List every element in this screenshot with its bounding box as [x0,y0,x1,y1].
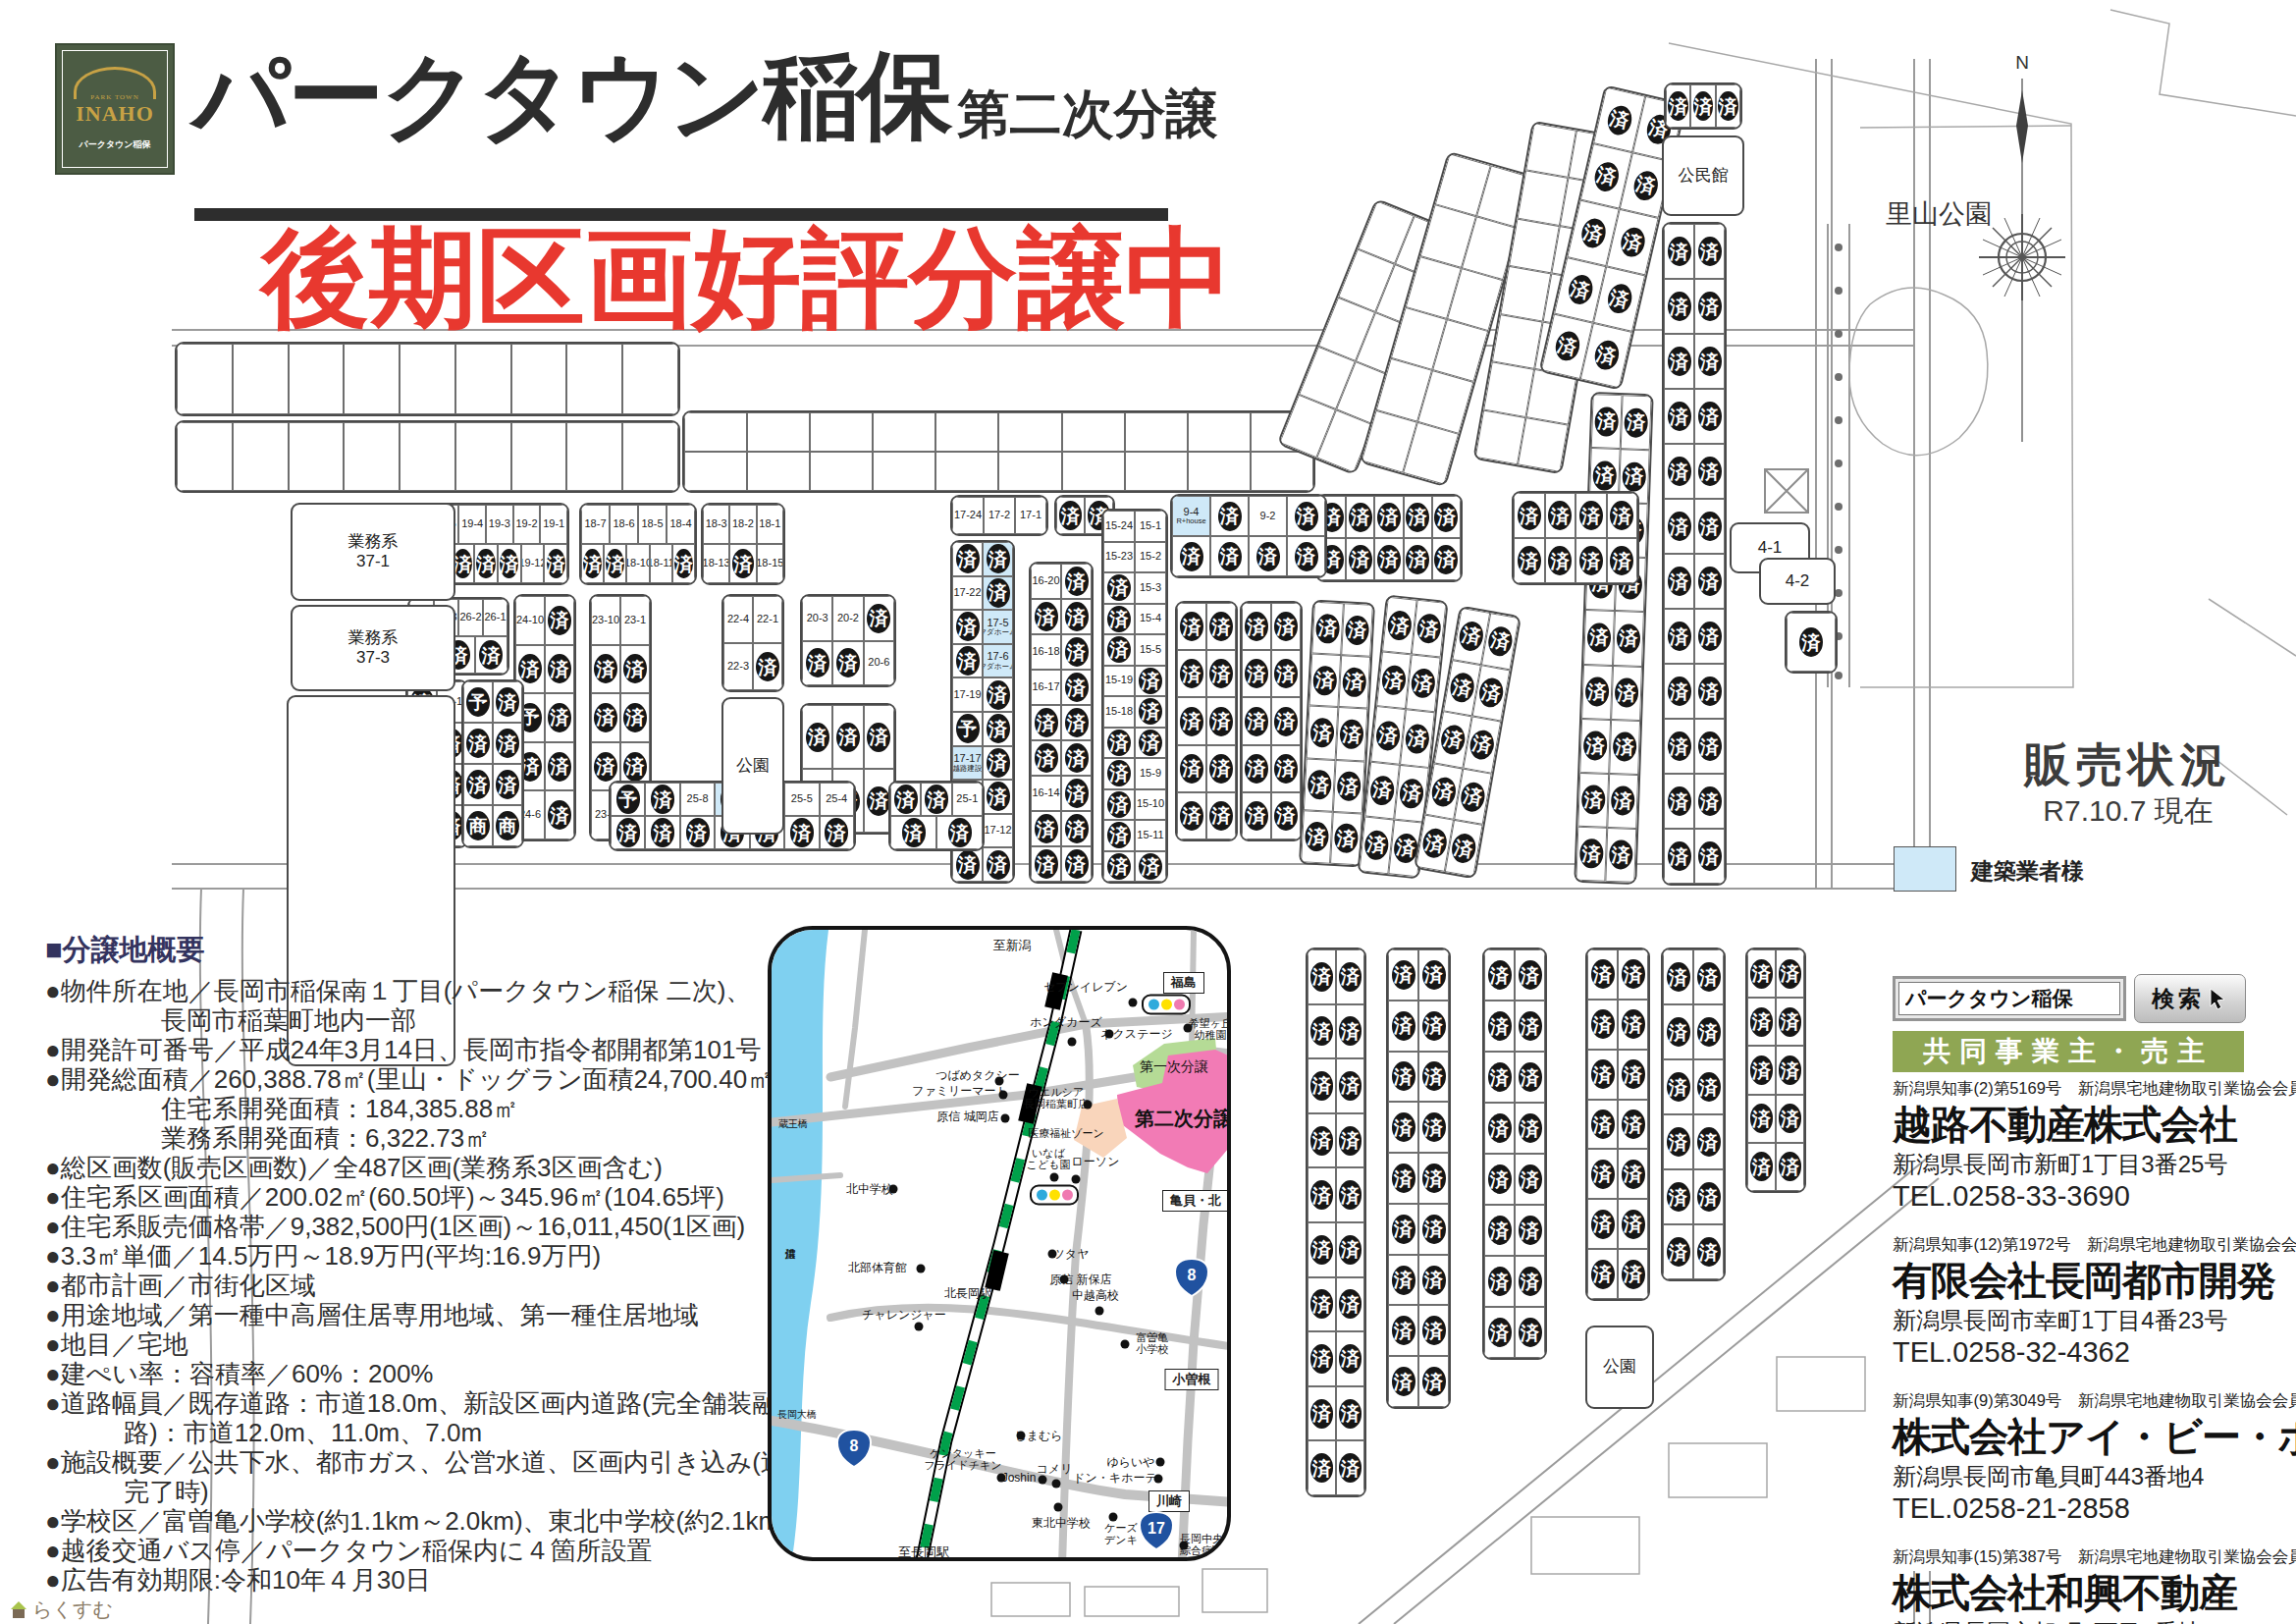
poi-dot-icon [1129,999,1138,1007]
sold-mark: 済 [1519,1318,1542,1347]
lot-cell: 済 [1271,603,1301,650]
map-parcel: 4-2 [1759,558,1836,605]
lot-number: 19-3 [489,518,510,530]
lot-cell: 済 [545,790,574,839]
lot-cell: 済 [1515,1205,1545,1256]
lot-cell: 済 [753,643,782,690]
lot-cell: 19-2 [513,505,541,544]
traffic-signal-icon [1142,995,1191,1015]
sold-mark: 済 [623,703,647,732]
lot-cell: 済 [1336,1277,1364,1332]
sold-mark: 済 [1622,1110,1645,1139]
lot-cell: 済 [1747,1095,1776,1143]
inset-place-label: 医療福祉ゾーン [1028,1128,1104,1140]
lot-cell: 済 [1308,1386,1336,1441]
lot-cell: 済 [1664,334,1694,389]
lot-cell: 済 [1336,1058,1364,1113]
overview-line: ●3.3㎡単価／14.5万円～18.9万円(平均:16.9万円) [45,1241,791,1271]
lot-cell: 済 [1545,538,1576,583]
inset-place-label: Joshin [1002,1472,1037,1485]
lot-cell: 済 [1611,666,1642,721]
lot-cell: 済 [591,693,620,742]
lot-cell [810,452,873,491]
lot-number: 17-22 [953,587,981,599]
lot-cell: 済 [493,723,522,764]
lot-cell: 済 [1618,1199,1648,1249]
lot-cell: 済 [1432,538,1461,580]
lot-cell: 済 [1135,696,1166,728]
lot-cell: 済 [784,816,819,849]
lot-cell: 済 [544,544,567,583]
overview-line: ●用途地域／第一種中高層住居専用地域、第一種住居地域 [45,1300,791,1329]
sold-mark: 済 [1336,771,1362,801]
lot-cell: 済 [1618,949,1648,1000]
lot-cell: 済 [1776,949,1804,998]
sold-mark: 済 [1468,729,1496,762]
lot-cell: 済 [463,764,493,805]
lot-cell: 済 [591,645,620,694]
lot-cell [1518,417,1569,472]
lot-cell: 17-22 [952,576,983,611]
sold-mark: 済 [1668,731,1691,761]
sold-mark: 済 [1422,1011,1446,1041]
sold-mark: 済 [1404,723,1430,754]
sold-mark: 済 [1718,91,1738,121]
lot-cell: 済 [1031,846,1061,882]
overview-line: 住宅系開発面積：184,385.88㎡ [45,1094,791,1123]
poi-dot-icon [1050,1173,1059,1182]
sold-mark: 済 [1209,612,1233,641]
lot-cell: 済 [1388,1153,1418,1204]
sold-mark: 済 [1392,1316,1415,1345]
lot-cell: 18-3 [703,505,729,544]
lot-cell: 済 [1031,705,1061,740]
lot-cell: 済 [1591,394,1623,449]
sold-mark: 済 [1488,1267,1512,1296]
inset-place-label: 中越高校 [1072,1289,1119,1302]
sold-mark: 済 [1779,1007,1802,1037]
sold-mark: 済 [1566,273,1595,307]
lot-cell: 17-24 [952,497,984,534]
sold-mark: 済 [1622,461,1646,492]
lot-cell: 予 [611,783,645,816]
sold-mark: 済 [1392,1164,1415,1193]
lot-cell: 済 [1575,493,1607,538]
lot-cell: 済 [1587,949,1618,1000]
lot-cell: 済 [1271,697,1301,744]
inset-place-label: いなば こども園 [1027,1148,1071,1171]
sold-mark: 済 [1310,1180,1334,1210]
sold-mark: 済 [1274,659,1298,688]
lot-cell: 17-17越路建設 [952,746,983,781]
sold-mark: 済 [1698,786,1722,816]
sold-mark: 済 [1312,665,1338,695]
sold-mark: 済 [1698,292,1722,321]
sold-mark: 済 [1667,962,1690,992]
sold-mark: 済 [1065,708,1089,737]
sold-mark: 済 [1392,960,1415,990]
lot-number: 23-10 [592,615,619,626]
sold-mark: 済 [1799,627,1823,657]
lot-cell: 済 [1618,1100,1648,1150]
lot-cell: 済 [1664,444,1694,499]
sold-mark: 済 [651,818,674,846]
poi-dot-icon [1039,1476,1047,1485]
sold-mark: 済 [867,786,890,816]
lot-cell: 済 [1664,774,1694,829]
sold-mark: 済 [1065,743,1089,773]
lot-number: 15-1 [1140,520,1161,532]
lot-cell: 済 [1587,1149,1618,1199]
lot-cell: 済 [1304,758,1336,812]
sold-mark: 済 [1107,730,1131,756]
lot-cell: 15-23 [1103,542,1135,573]
lot-cell: 済 [1432,496,1461,538]
lot-cell: 済 [545,596,574,645]
lot-cell: 済 [1103,820,1135,851]
sold-mark: 済 [1422,1061,1446,1091]
sold-mark: 済 [1339,1071,1362,1101]
lot-cell: 済 [1664,609,1694,664]
lot-cell [344,422,400,491]
sold-mark: 済 [1256,542,1280,571]
lot-number: 17-12 [984,825,1011,837]
lot-cell: 済 [1333,760,1365,814]
lot-cell: 済 [1388,1356,1418,1407]
lot-cell: 済 [1613,611,1644,666]
sold-mark: 済 [1667,1017,1690,1047]
lot-cell [747,412,810,452]
sold-mark: 済 [623,752,647,782]
lot-number: 17-5ヤマダホームズ [983,618,1013,636]
lot-cell: 済 [1747,1143,1776,1191]
sold-mark: 済 [1274,612,1298,641]
sold-mark: 済 [1552,329,1581,363]
lot-cell: 15-24 [1103,511,1135,542]
sold-mark: 済 [1059,501,1083,530]
lot-cell: 15-18 [1103,696,1135,728]
lot-block [682,410,1315,493]
sold-mark: 済 [1750,1056,1774,1085]
sold-mark: 済 [1605,103,1634,137]
inset-place-label: 長岡大橋 [777,1410,817,1421]
lot-cell: 済 [463,723,493,764]
sold-mark: 済 [1339,719,1364,749]
sold-mark: 済 [867,723,890,752]
lot-block [175,420,680,493]
sold-mark: 済 [1309,718,1335,748]
inset-place-label: ローソン [1072,1156,1120,1168]
lot-cell: 済 [1663,1059,1693,1114]
sold-mark: 済 [790,818,814,846]
sold-mark: 済 [1065,602,1089,631]
reserved-mark: 予 [616,785,640,813]
lot-block: 16-20済済済16-18済16-17済済済済済16-14済済済済済 [1029,562,1094,884]
poi-dot-icon [1156,1458,1165,1467]
lot-cell: 済 [1336,1440,1364,1495]
sold-mark: 済 [1065,779,1089,808]
overview-line: ●開発総面積／260,388.78㎡(里山・ドッグラン面積24,700.40㎡含… [45,1064,791,1094]
sold-mark: 済 [1697,1072,1721,1102]
sold-mark: 済 [1624,407,1648,438]
lot-block: 20-320-2済済済20-6 [800,594,896,687]
lot-cell: 済 [1694,279,1725,334]
sold-mark: 済 [1310,1289,1334,1319]
sold-mark: 済 [987,748,1010,778]
lot-number: 22-4 [727,614,749,625]
sold-mark: 済 [1518,501,1541,530]
sold-mark: 済 [1622,1260,1645,1289]
map-parcel: 業務系 37-3 [291,605,455,691]
sold-mark: 済 [1410,668,1436,699]
lot-number: 25-4 [826,793,847,805]
route-shield-icon: 17 [1137,1509,1176,1552]
sold-mark: 済 [1307,770,1332,800]
overview-line: ●越後交通バス停／パークタウン稲保内に４箇所設置 [45,1536,791,1565]
lot-cell: 19-3 [486,505,513,544]
lot-cell [1062,412,1125,452]
lot-number: 20-2 [837,613,859,624]
sold-mark: 済 [1615,677,1639,708]
lot-cell: 済 [1587,1249,1618,1299]
poi-dot-icon [1017,1432,1026,1440]
lot-cell: 済 [1663,1169,1693,1224]
lot-cell: 済 [1388,1255,1418,1306]
lot-cell [747,452,810,491]
poi-dot-icon [1184,1024,1193,1033]
lot-cell: 済 [1515,949,1545,1001]
sold-mark: 済 [594,752,617,782]
sold-mark: 済 [732,549,754,578]
lot-block: 済済済済済済済済 [1512,491,1639,585]
lot-number: 9-4R+house [1176,507,1205,525]
lot-cell: 済 [1031,599,1061,634]
sold-mark: 済 [1339,1453,1362,1483]
lot-number: 15-24 [1105,520,1133,532]
lot-number: 20-3 [807,613,828,624]
lot-cell: 済 [493,764,522,805]
sold-mark: 済 [1245,754,1268,784]
lot-cell: 済 [1418,1153,1449,1204]
sold-mark: 済 [1209,754,1233,784]
lot-cell: 済 [1694,774,1725,829]
sold-mark: 済 [1519,1011,1542,1041]
lot-cell: 済 [1484,1103,1515,1154]
sold-mark: 済 [1519,1164,1542,1194]
lot-cell: 済 [1776,1095,1804,1143]
sold-mark: 済 [894,785,918,813]
poi-dot-icon [1054,1503,1063,1512]
sold-mark: 済 [1667,1237,1690,1267]
sold-mark: 済 [1139,853,1162,880]
inset-place-label: つばめタクシー [935,1069,1020,1082]
lot-cell: 済 [1412,600,1447,658]
sold-mark: 済 [1486,624,1515,658]
route-shield-icon: 8 [1172,1256,1211,1299]
sold-mark: 済 [1609,839,1633,870]
sold-mark: 済 [1310,1235,1334,1265]
lot-cell: 済 [1776,998,1804,1046]
inset-place-label: コメリ [1037,1463,1073,1476]
sold-mark: 済 [836,648,860,677]
lot-cell: 済 [1664,554,1694,609]
lot-number: 16-14 [1032,787,1059,799]
sold-mark: 済 [1622,1210,1645,1239]
sold-mark: 済 [1697,1237,1721,1267]
lot-cell: 済 [1061,811,1092,846]
lot-cell: 22-3 [723,643,753,690]
lot-cell: 20-2 [832,596,863,641]
lot-cell: 予 [463,681,493,723]
sold-mark: 済 [1218,502,1242,531]
sold-mark: 済 [1434,545,1458,574]
lot-cell: 済 [604,544,626,583]
lot-number: 18-13 [703,558,729,569]
lot-cell: 済 [1575,538,1607,583]
lot-number: 18-3 [706,518,727,530]
sold-mark: 済 [1591,159,1621,193]
sold-mark: 済 [1779,1152,1802,1181]
lot-cell: 済 [1388,1052,1418,1103]
poi-dot-icon [1154,1475,1163,1484]
lot-cell: 済 [1061,670,1092,705]
inset-place-label: 第二次分譲 [1135,1109,1231,1130]
lot-cell: 済 [1607,493,1638,538]
sold-mark: 済 [623,654,647,683]
lot-cell: 18-15 [757,544,783,583]
sold-mark: 済 [548,606,571,635]
lot-cell: 済 [1618,1149,1648,1199]
lot-cell: 26-2 [458,599,483,636]
sold-mark: 済 [956,544,980,573]
lot-cell: 済 [1607,774,1638,829]
lot-cell [873,412,935,452]
sold-mark: 済 [987,782,1010,811]
sold-mark: 済 [1245,659,1268,688]
sold-mark: 済 [1668,567,1691,596]
inset-place-label: 北長岡駅 [944,1287,991,1300]
lot-cell: 済 [620,645,650,694]
lot-cell: 済 [1301,810,1333,864]
lot-cell: 済 [864,705,894,769]
sold-mark: 済 [1339,1289,1362,1319]
sold-mark: 済 [1750,1007,1774,1037]
inset-intersection-label: 小曽根 [1165,1369,1219,1390]
sold-mark: 済 [1698,512,1722,541]
sold-mark: 済 [1779,959,1802,989]
lot-cell: 済 [1308,1113,1336,1168]
sold-mark: 済 [1779,1056,1802,1085]
lot-cell: 済 [1336,1113,1364,1168]
lot-cell: 済 [1515,1103,1545,1154]
sold-mark: 済 [1668,292,1691,321]
lot-cell: 済 [1418,1255,1449,1306]
inset-place-label: 原信 城岡店 [936,1110,998,1123]
sold-mark: 済 [1245,707,1268,736]
inset-place-label: ゆらいや [1106,1456,1154,1469]
sold-mark: 済 [1630,169,1660,203]
lot-cell: 15-1 [1135,511,1166,542]
sold-mark: 済 [454,549,472,578]
sold-mark: 済 [1065,849,1089,879]
lot-cell: 17-6ヤマダホームズ [983,644,1013,678]
lot-cell [622,344,678,414]
lot-cell: 済 [1308,1058,1336,1113]
commercial-mark: 商 [466,811,490,840]
lot-cell: 済 [1388,1001,1418,1052]
lot-number: 26-2 [459,612,481,623]
sold-mark: 済 [1065,567,1089,596]
sold-mark: 済 [1349,503,1372,532]
lot-cell: 済 [1694,334,1725,389]
lot-cell [177,422,233,491]
lot-cell: 16-14 [1031,776,1061,811]
lot-cell: 済 [983,780,1013,814]
lot-cell: 23-1 [620,596,650,645]
lot-cell [1188,412,1251,452]
sold-mark: 済 [1386,610,1413,641]
sold-mark: 済 [1295,502,1318,531]
sold-mark: 済 [1392,1367,1415,1396]
lot-number: 17-1 [1020,510,1041,521]
sold-mark: 済 [1518,546,1541,575]
sold-mark: 済 [1581,785,1606,815]
lot-cell: 24-10 [515,596,545,645]
lot-cell [935,452,998,491]
svg-text:17: 17 [1148,1520,1165,1537]
lot-cell: 済 [1336,1331,1364,1386]
lot-cell: 済 [1206,697,1236,744]
sold-mark: 済 [1107,574,1131,601]
sold-mark: 済 [1339,1235,1362,1265]
lot-cell: 済 [1336,1167,1364,1222]
sold-mark: 済 [606,549,624,578]
sold-mark: 済 [1107,760,1131,786]
lot-cell: 済 [1587,1050,1618,1100]
poi-dot-icon [889,1185,898,1194]
lot-cell: 済 [1308,949,1336,1004]
lot-cell [1125,452,1188,491]
sold-mark: 済 [1339,1399,1362,1429]
overview-line: 長岡市稲葉町地内一部 [45,1005,791,1035]
lot-cell: 18-11 [650,544,672,583]
lot-number: 18-5 [641,518,663,530]
lot-cell: 15-2 [1135,542,1166,573]
sold-mark: 済 [466,729,490,758]
lot-block: 済済済済済済済済済済 [1745,947,1806,1193]
sold-mark: 済 [1434,503,1458,532]
lot-cell: 済 [1210,536,1249,576]
sold-mark: 済 [1594,406,1619,437]
inset-place-label: 東北中学校 [1032,1517,1091,1530]
lot-cell [566,344,622,414]
lot-block: 予済済済済済商商 [461,679,524,848]
lot-cell: 済 [1400,710,1435,768]
sold-mark: 済 [1342,667,1367,697]
lot-number: 18-15 [757,558,783,569]
sold-mark: 済 [806,648,829,677]
lot-cell: 済 [1103,851,1135,883]
lot-cell [622,422,678,491]
lot-cell: 済 [1210,496,1249,536]
lot-number: 26-1 [484,612,506,623]
lot-cell: 18-7 [581,505,610,544]
svg-text:8: 8 [850,1437,859,1454]
lot-cell: 済 [1418,1356,1449,1407]
sold-mark: 済 [1392,1061,1415,1091]
lot-number: 23-1 [624,615,646,626]
lot-cell: 済 [802,705,832,769]
